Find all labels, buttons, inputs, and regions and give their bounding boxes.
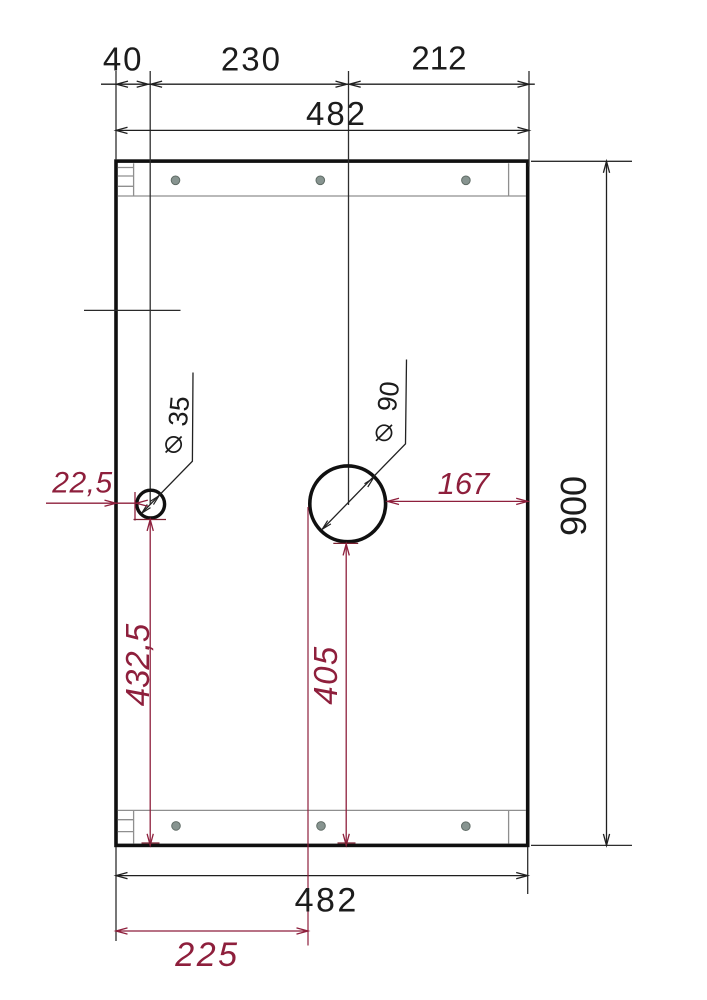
svg-text:90: 90 xyxy=(372,380,405,413)
svg-text:432,5: 432,5 xyxy=(119,623,156,706)
svg-text:405: 405 xyxy=(307,645,344,705)
svg-text:230: 230 xyxy=(221,41,282,78)
svg-text:900: 900 xyxy=(553,476,594,536)
svg-text:22,5: 22,5 xyxy=(51,467,112,500)
svg-text:482: 482 xyxy=(306,95,367,132)
svg-text:212: 212 xyxy=(411,40,466,77)
svg-text:167: 167 xyxy=(438,466,491,501)
svg-text:40: 40 xyxy=(103,41,144,78)
svg-text:482: 482 xyxy=(295,882,359,920)
svg-text:225: 225 xyxy=(174,936,239,974)
svg-text:35: 35 xyxy=(163,395,196,428)
